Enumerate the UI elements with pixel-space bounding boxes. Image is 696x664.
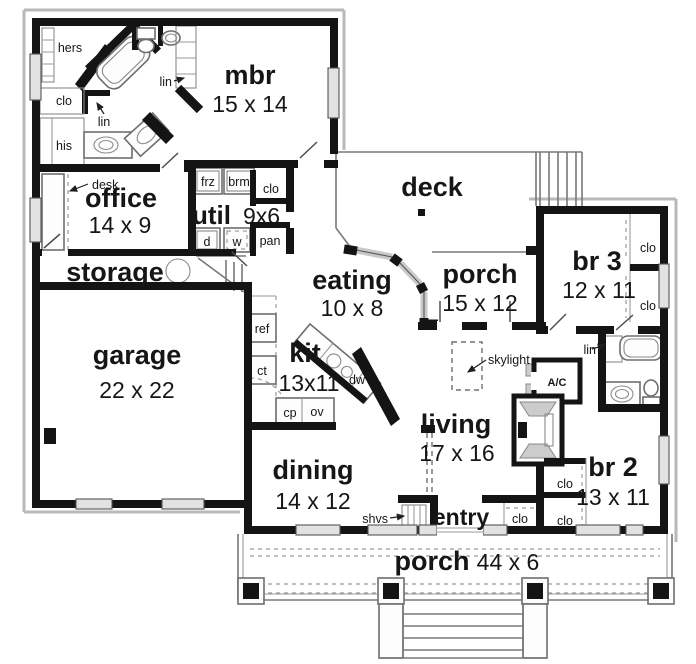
room-dims-office: 14 x 9: [89, 212, 152, 238]
room-dims-kit: 13x11: [279, 370, 340, 396]
label-clo-util: clo: [263, 182, 279, 196]
hall-bath: [604, 336, 662, 406]
label-ref: ref: [255, 322, 270, 336]
lin-nook: [82, 90, 110, 114]
room-dims-mbr: 15 x 14: [212, 91, 288, 117]
room-name-garage: garage: [93, 340, 182, 370]
label-shvs: shvs: [362, 512, 388, 526]
label-pan: pan: [260, 234, 281, 248]
porch-column: [378, 578, 404, 604]
label-lin-mbr: lin: [159, 75, 172, 89]
label-clo-bath: clo: [56, 94, 72, 108]
label-ac: A/C: [548, 377, 567, 389]
label-frz: frz: [201, 175, 215, 189]
room-name-br3: br 3: [572, 246, 622, 276]
room-dims-living: 17 x 16: [419, 440, 494, 466]
room-dims-porch-upper: 15 x 12: [442, 290, 517, 316]
label-dw: dw: [349, 373, 366, 387]
room-name-util: util: [192, 200, 231, 230]
label-lin-bath: lin: [98, 115, 111, 129]
bathtub-2: [620, 336, 662, 360]
room-name-porch-upper: porch: [442, 259, 517, 289]
label-his: his: [56, 139, 72, 153]
fireplace: [514, 396, 562, 464]
label-cp: cp: [283, 406, 296, 420]
label-ov: ov: [310, 405, 324, 419]
deck-post: [418, 209, 425, 216]
label-ct: ct: [257, 364, 267, 378]
garage-side-door: [44, 428, 56, 444]
room-name-entry: entry: [433, 504, 489, 530]
entry-steps: [379, 604, 547, 658]
water-heater: [166, 259, 190, 283]
label-clo-br3-a: clo: [640, 241, 656, 255]
room-name-living: living: [421, 409, 492, 439]
room-dims-garage: 22 x 22: [99, 377, 174, 403]
label-hers: hers: [58, 41, 82, 55]
room-name-br2: br 2: [588, 452, 638, 482]
label-clo-entry: clo: [512, 512, 528, 526]
room-dims-br2: 13 x 11: [576, 484, 650, 510]
room-name-deck: deck: [401, 172, 464, 202]
porch-column: [522, 578, 548, 604]
room-name-dining: dining: [273, 455, 354, 485]
label-w: w: [231, 235, 242, 249]
deck-outline: [336, 152, 582, 252]
room-name-mbr: mbr: [224, 60, 276, 90]
porch-column: [648, 578, 674, 604]
label-clo-br2-b: clo: [557, 514, 573, 528]
room-name-kit: kit: [289, 338, 321, 368]
label-desk: desk: [92, 178, 119, 192]
label-brm: brm: [228, 175, 250, 189]
label-lin-hallbath: lin: [583, 343, 596, 357]
label-d: d: [204, 235, 211, 249]
room-name-porch-lower: porch: [394, 546, 469, 576]
porch-column: [238, 578, 264, 604]
room-dims-porch-lower: 44 x 6: [477, 549, 540, 575]
room-dims-util: 9x6: [243, 203, 280, 229]
label-clo-br2-a: clo: [557, 477, 573, 491]
room-dims-eating: 10 x 8: [321, 295, 384, 321]
label-clo-br3-b: clo: [640, 299, 656, 313]
room-dims-br3: 12 x 11: [562, 277, 636, 303]
label-skylight: skylight: [488, 353, 530, 367]
floor-plan: mbr 15 x 14 office 14 x 9 util 9x6 stora…: [0, 0, 696, 664]
room-name-eating: eating: [312, 265, 392, 295]
room-dims-dining: 14 x 12: [275, 488, 350, 514]
room-name-storage: storage: [66, 257, 164, 287]
toilet-2: [643, 380, 660, 405]
